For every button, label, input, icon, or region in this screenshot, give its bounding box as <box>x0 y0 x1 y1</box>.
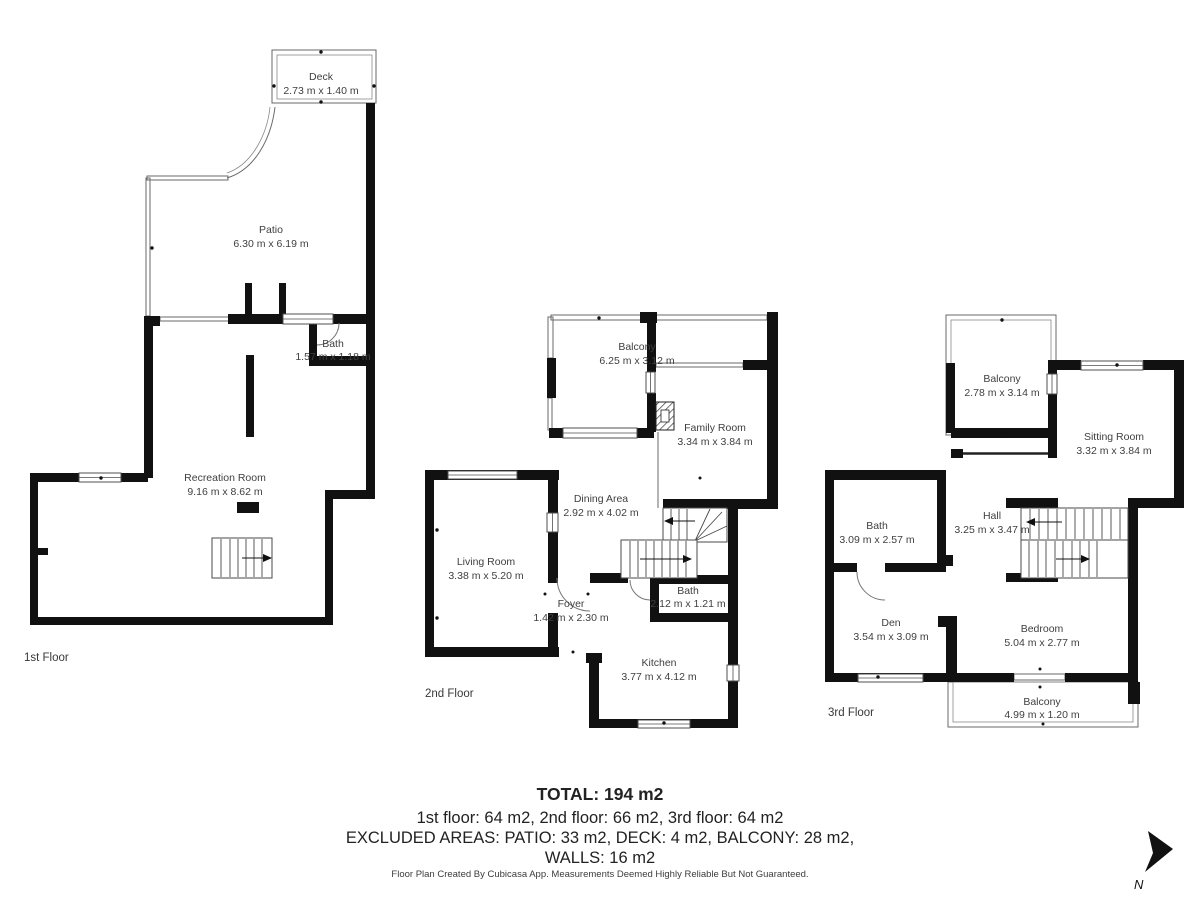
room-label: Recreation Room <box>184 472 266 484</box>
room-dims: 6.25 m x 3.12 m <box>599 355 675 367</box>
room-dims: 2.12 m x 1.21 m <box>650 598 726 610</box>
room-dims: 2.78 m x 3.14 m <box>964 387 1040 399</box>
room-label: Den <box>881 617 900 629</box>
room-label: Balcony <box>983 373 1021 385</box>
room-label: Hall <box>983 510 1001 522</box>
room-dims: 6.30 m x 6.19 m <box>233 238 309 250</box>
window <box>547 513 558 532</box>
room-label: Bath <box>866 520 888 532</box>
window <box>448 471 517 479</box>
room-dims: 1.57 m x 1.18 m <box>295 351 371 363</box>
disclaimer-text: Floor Plan Created By Cubicasa App. Meas… <box>0 869 1200 880</box>
room-label: Deck <box>309 71 334 83</box>
room-label: Patio <box>259 224 283 236</box>
total-area-text: TOTAL: 194 m2 <box>0 784 1200 805</box>
room-label: Foyer <box>558 598 585 610</box>
window <box>858 674 923 682</box>
room-label: Balcony <box>618 341 656 353</box>
room-label: Bedroom <box>1021 623 1064 635</box>
room-dims: 9.16 m x 8.62 m <box>187 486 263 498</box>
room-dims: 3.77 m x 4.12 m <box>621 671 697 683</box>
window <box>646 372 655 393</box>
room-dims: 3.25 m x 3.47 m <box>954 524 1030 536</box>
room-dims: 2.73 m x 1.40 m <box>283 85 359 97</box>
survey-dots <box>33 50 375 622</box>
stairs-icon <box>1021 508 1128 578</box>
room-dims: 3.54 m x 3.09 m <box>853 631 929 643</box>
patio-structure <box>146 107 275 321</box>
room-dims: 5.04 m x 2.77 m <box>1004 637 1080 649</box>
room-label: Kitchen <box>641 657 676 669</box>
floor-label-3rd: 3rd Floor <box>828 707 874 719</box>
room-dims: 1.42 m x 2.30 m <box>533 612 609 624</box>
door-arc-icon <box>857 572 885 600</box>
room-label: Sitting Room <box>1084 431 1144 443</box>
floor-plan-page: Deck 2.73 m x 1.40 m Patio 6.30 m x 6.19… <box>0 0 1200 900</box>
floor-plan-3rd: Balcony 2.78 m x 3.14 m Sitting Room 3.3… <box>825 315 1184 727</box>
fireplace-icon <box>656 402 674 430</box>
room-dims: 3.32 m x 3.84 m <box>1076 445 1152 457</box>
room-label: Dining Area <box>574 493 628 505</box>
windows <box>79 314 333 482</box>
walls-area-text: WALLS: 16 m2 <box>0 848 1200 868</box>
window <box>283 314 333 324</box>
room-label: Bath <box>677 585 699 597</box>
floor-label-2nd: 2nd Floor <box>425 688 474 700</box>
room-label: Family Room <box>684 422 746 434</box>
room-label: Bath <box>322 338 344 350</box>
room-label: Living Room <box>457 556 516 568</box>
room-labels: Deck 2.73 m x 1.40 m Patio 6.30 m x 6.19… <box>184 71 371 498</box>
window <box>1047 374 1057 394</box>
room-dims: 3.09 m x 2.57 m <box>839 534 915 546</box>
room-dims: 2.92 m x 4.02 m <box>563 507 639 519</box>
room-dims: 3.38 m x 5.20 m <box>448 570 524 582</box>
walls <box>30 103 375 625</box>
floor-plan-1st: Deck 2.73 m x 1.40 m Patio 6.30 m x 6.19… <box>24 50 376 664</box>
floor-label-1st: 1st Floor <box>24 652 69 664</box>
excluded-areas-text: EXCLUDED AREAS: PATIO: 33 m2, DECK: 4 m2… <box>0 828 1200 848</box>
floor-areas-text: 1st floor: 64 m2, 2nd floor: 66 m2, 3rd … <box>0 808 1200 828</box>
window <box>727 665 739 681</box>
window <box>563 428 637 438</box>
stairs-icon <box>212 538 272 578</box>
area-summary: TOTAL: 194 m2 1st floor: 64 m2, 2nd floo… <box>0 784 1200 868</box>
room-dims: 4.99 m x 1.20 m <box>1004 709 1080 721</box>
room-label: Balcony <box>1023 696 1061 708</box>
room-dims: 3.34 m x 3.84 m <box>677 436 753 448</box>
floor-plan-drawing: Deck 2.73 m x 1.40 m Patio 6.30 m x 6.19… <box>0 0 1200 900</box>
floor-plan-2nd: Balcony 6.25 m x 3.12 m Family Room 3.34… <box>425 312 778 728</box>
window <box>1081 361 1143 370</box>
